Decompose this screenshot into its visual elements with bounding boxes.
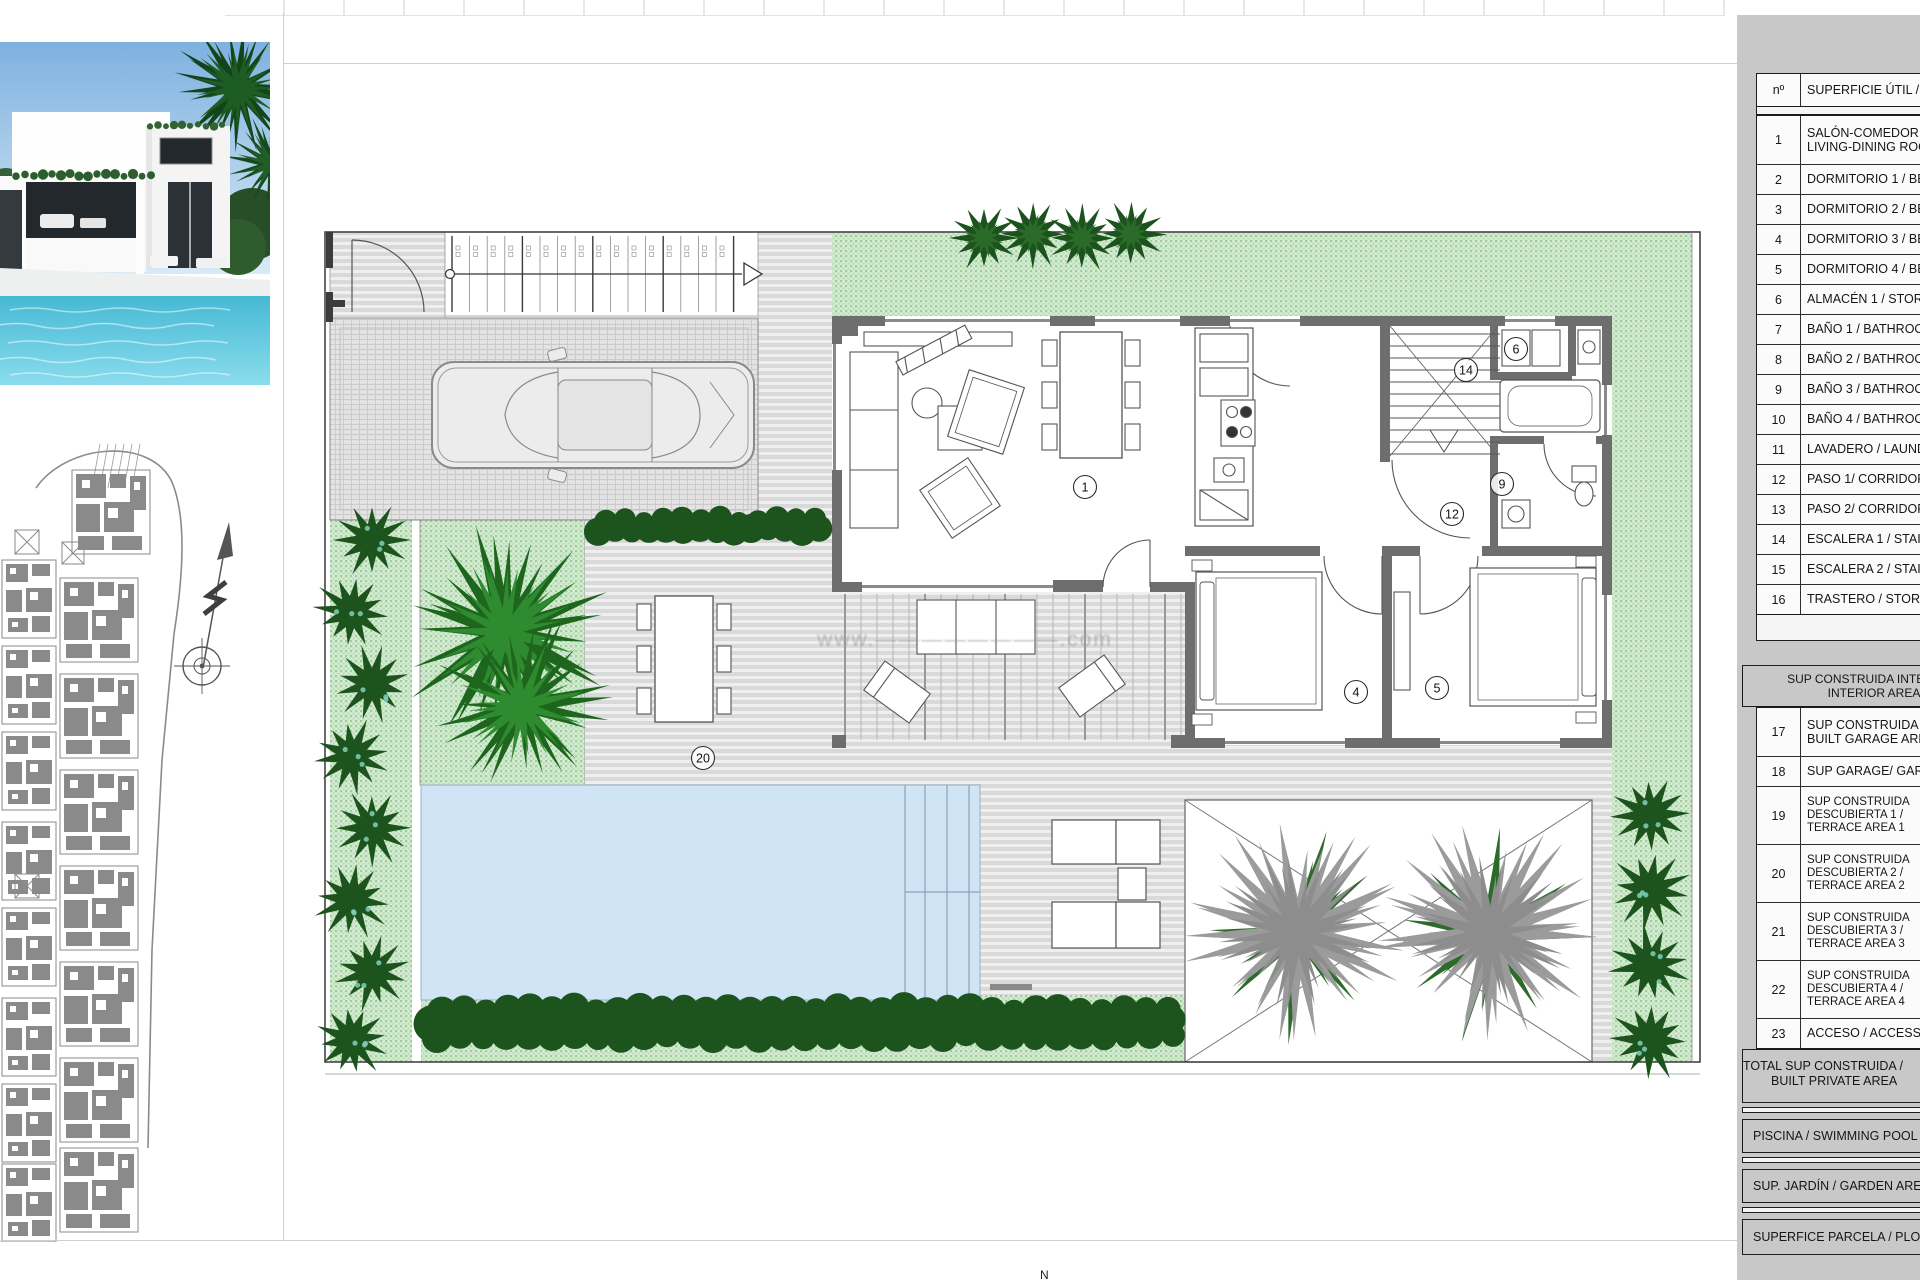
area-table-body-1: 1SALÓN-COMEDOR /LIVING-DINING ROOM2DORMI… (1756, 115, 1920, 615)
room-label-5: 5 (1426, 677, 1449, 700)
area-table-row: 5DORMITORIO 4 / BEDROOM 4 (1757, 254, 1920, 284)
row-label: DORMITORIO 2 / BEDROOM 2 (1801, 195, 1920, 224)
row-number: 7 (1757, 315, 1801, 344)
svg-text:12: 12 (1445, 508, 1459, 522)
area-table-row: 12PASO 1/ CORRIDOR 1 (1757, 464, 1920, 494)
row-label: ESCALERA 2 / STAIRS 2 (1801, 555, 1920, 584)
row-label: SALÓN-COMEDOR /LIVING-DINING ROOM (1801, 116, 1920, 164)
area-table-row: 9BAÑO 3 / BATHROOM 3 (1757, 374, 1920, 404)
area-table-row: 6ALMACÉN 1 / STORAGE 1 (1757, 284, 1920, 314)
total-row: TOTAL SUP CONSTRUIDA /BUILT PRIVATE AREA (1742, 1049, 1920, 1103)
room-label-6: 6 (1505, 338, 1528, 361)
row-label: BAÑO 2 / BATHROOM 2 (1801, 345, 1920, 374)
summary-row: SUP. JARDÍN / GARDEN AREA (1742, 1169, 1920, 1203)
area-table-row: 4DORMITORIO 3 / BEDROOM 3 (1757, 224, 1920, 254)
hob (1221, 400, 1255, 446)
row-label: ESCALERA 1 / STAIRS 1 (1801, 525, 1920, 554)
area-table-panel: nºSUPERFICIE ÚTIL / USABLE AREA1SALÓN-CO… (1737, 15, 1920, 1280)
car-top-view (432, 347, 754, 483)
row-label: SUP CONSTRUIDADESCUBIERTA 2 /TERRACE ARE… (1801, 845, 1920, 902)
outdoor-dining-set (637, 596, 731, 722)
area-table-header: nºSUPERFICIE ÚTIL / USABLE AREA (1756, 73, 1920, 107)
row-label: DORMITORIO 3 / BEDROOM 3 (1801, 225, 1920, 254)
row-number: 3 (1757, 195, 1801, 224)
room-label-14: 14 (1455, 359, 1478, 382)
row-number: 23 (1757, 1019, 1801, 1048)
svg-text:4: 4 (1353, 686, 1360, 700)
area-table: nºSUPERFICIE ÚTIL / USABLE AREA1SALÓN-CO… (1756, 73, 1920, 1255)
row-label: LAVADERO / LAUNDRY (1801, 435, 1920, 464)
swimming-pool (421, 785, 980, 1000)
row-number: 15 (1757, 555, 1801, 584)
svg-text:5: 5 (1434, 682, 1441, 696)
room-label-20: 20 (692, 747, 715, 770)
col-header-label: SUPERFICIE ÚTIL / USABLE AREA (1801, 74, 1920, 106)
room-label-1: 1 (1074, 476, 1097, 499)
svg-text:6: 6 (1513, 343, 1520, 357)
table-gap (1756, 107, 1920, 115)
room-label-9: 9 (1491, 473, 1514, 496)
plan-sheet: 16149124520 www.————————.com nºSUPERFICI… (0, 0, 1920, 1280)
svg-text:1: 1 (1082, 481, 1089, 495)
row-number: 5 (1757, 255, 1801, 284)
watermark: www.————————.com (816, 628, 1113, 651)
row-label: BAÑO 4 / BATHROOM 4 (1801, 405, 1920, 434)
row-label: SUP CONSTRUIDADESCUBIERTA 3 /TERRACE ARE… (1801, 903, 1920, 960)
summary-row: PISCINA / SWIMMING POOL (1742, 1119, 1920, 1153)
row-number: 19 (1757, 787, 1801, 844)
row-number: 10 (1757, 405, 1801, 434)
row-number: 8 (1757, 345, 1801, 374)
room-label-12: 12 (1441, 503, 1464, 526)
garden-lawn-top (830, 232, 1692, 316)
summary-row: SUPERFICE PARCELA / PLOT AREA (1742, 1219, 1920, 1255)
area-table-row: 15ESCALERA 2 / STAIRS 2 (1757, 554, 1920, 584)
bottom-edge-mark: N (1040, 1268, 1049, 1280)
area-table-row: 8BAÑO 2 / BATHROOM 2 (1757, 344, 1920, 374)
area-table-row: 1SALÓN-COMEDOR /LIVING-DINING ROOM (1757, 116, 1920, 164)
area-table-row: 22SUP CONSTRUIDADESCUBIERTA 4 /TERRACE A… (1757, 960, 1920, 1018)
svg-text:20: 20 (696, 752, 710, 766)
area-table-row: 18SUP GARAGE/ GARAGE (1757, 756, 1920, 786)
col-header-number: nº (1757, 74, 1801, 106)
row-number: 6 (1757, 285, 1801, 314)
area-table-row: 11LAVADERO / LAUNDRY (1757, 434, 1920, 464)
row-label: ACCESO / ACCESS (1801, 1019, 1920, 1048)
row-label: PASO 2/ CORRIDOR 2 (1801, 495, 1920, 524)
row-label: TRASTERO / STORAGE (1801, 585, 1920, 614)
row-number: 11 (1757, 435, 1801, 464)
row-label: SUP CONSTRUIDA GARAJE /BUILT GARAGE AREA (1801, 708, 1920, 756)
row-number: 13 (1757, 495, 1801, 524)
hedge-bottom (414, 992, 1186, 1053)
row-number: 12 (1757, 465, 1801, 494)
row-number: 4 (1757, 225, 1801, 254)
area-table-row: 23ACCESO / ACCESS (1757, 1018, 1920, 1048)
row-label: DORMITORIO 1 / BEDROOM 1 (1801, 165, 1920, 194)
row-number: 2 (1757, 165, 1801, 194)
row-label: PASO 1/ CORRIDOR 1 (1801, 465, 1920, 494)
row-number: 22 (1757, 961, 1801, 1018)
deck-strip (758, 232, 832, 520)
area-table-row: 14ESCALERA 1 / STAIRS 1 (1757, 524, 1920, 554)
row-label: BAÑO 3 / BATHROOM 3 (1801, 375, 1920, 404)
row-number: 21 (1757, 903, 1801, 960)
row-label: DORMITORIO 4 / BEDROOM 4 (1801, 255, 1920, 284)
area-table-row: 16TRASTERO / STORAGE (1757, 584, 1920, 614)
row-label: BAÑO 1 / BATHROOM 1 (1801, 315, 1920, 344)
area-table-row: 10BAÑO 4 / BATHROOM 4 (1757, 404, 1920, 434)
table-gap (1756, 615, 1920, 641)
pool-ladder (990, 984, 1032, 990)
row-label: SUP CONSTRUIDADESCUBIERTA 1 /TERRACE ARE… (1801, 787, 1920, 844)
row-label: SUP CONSTRUIDADESCUBIERTA 4 /TERRACE ARE… (1801, 961, 1920, 1018)
row-number: 16 (1757, 585, 1801, 614)
area-table-row: 20SUP CONSTRUIDADESCUBIERTA 2 /TERRACE A… (1757, 844, 1920, 902)
area-table-row: 13PASO 2/ CORRIDOR 2 (1757, 494, 1920, 524)
room-label-4: 4 (1345, 681, 1368, 704)
row-number: 18 (1757, 757, 1801, 786)
area-table-row: 3DORMITORIO 2 / BEDROOM 2 (1757, 194, 1920, 224)
row-label: ALMACÉN 1 / STORAGE 1 (1801, 285, 1920, 314)
row-number: 9 (1757, 375, 1801, 404)
area-table-row: 17SUP CONSTRUIDA GARAJE /BUILT GARAGE AR… (1757, 708, 1920, 756)
section-header: SUP CONSTRUIDA INTERIOR /INTERIOR AREA (1742, 665, 1920, 707)
area-table-body-2: 17SUP CONSTRUIDA GARAJE /BUILT GARAGE AR… (1756, 707, 1920, 1049)
row-number: 17 (1757, 708, 1801, 756)
floor-plan: 16149124520 www.————————.com (0, 0, 1920, 1280)
entrance-walk (330, 232, 445, 318)
row-number: 14 (1757, 525, 1801, 554)
svg-text:9: 9 (1499, 478, 1506, 492)
row-label: SUP GARAGE/ GARAGE (1801, 757, 1920, 786)
area-table-row: 19SUP CONSTRUIDADESCUBIERTA 1 /TERRACE A… (1757, 786, 1920, 844)
toilet (1575, 482, 1593, 506)
area-table-row: 2DORMITORIO 1 / BEDROOM 1 (1757, 164, 1920, 194)
svg-text:14: 14 (1459, 364, 1473, 378)
row-number: 20 (1757, 845, 1801, 902)
row-number: 1 (1757, 116, 1801, 164)
closet (1394, 592, 1410, 690)
area-table-row: 7BAÑO 1 / BATHROOM 1 (1757, 314, 1920, 344)
area-table-row: 21SUP CONSTRUIDADESCUBIERTA 3 /TERRACE A… (1757, 902, 1920, 960)
